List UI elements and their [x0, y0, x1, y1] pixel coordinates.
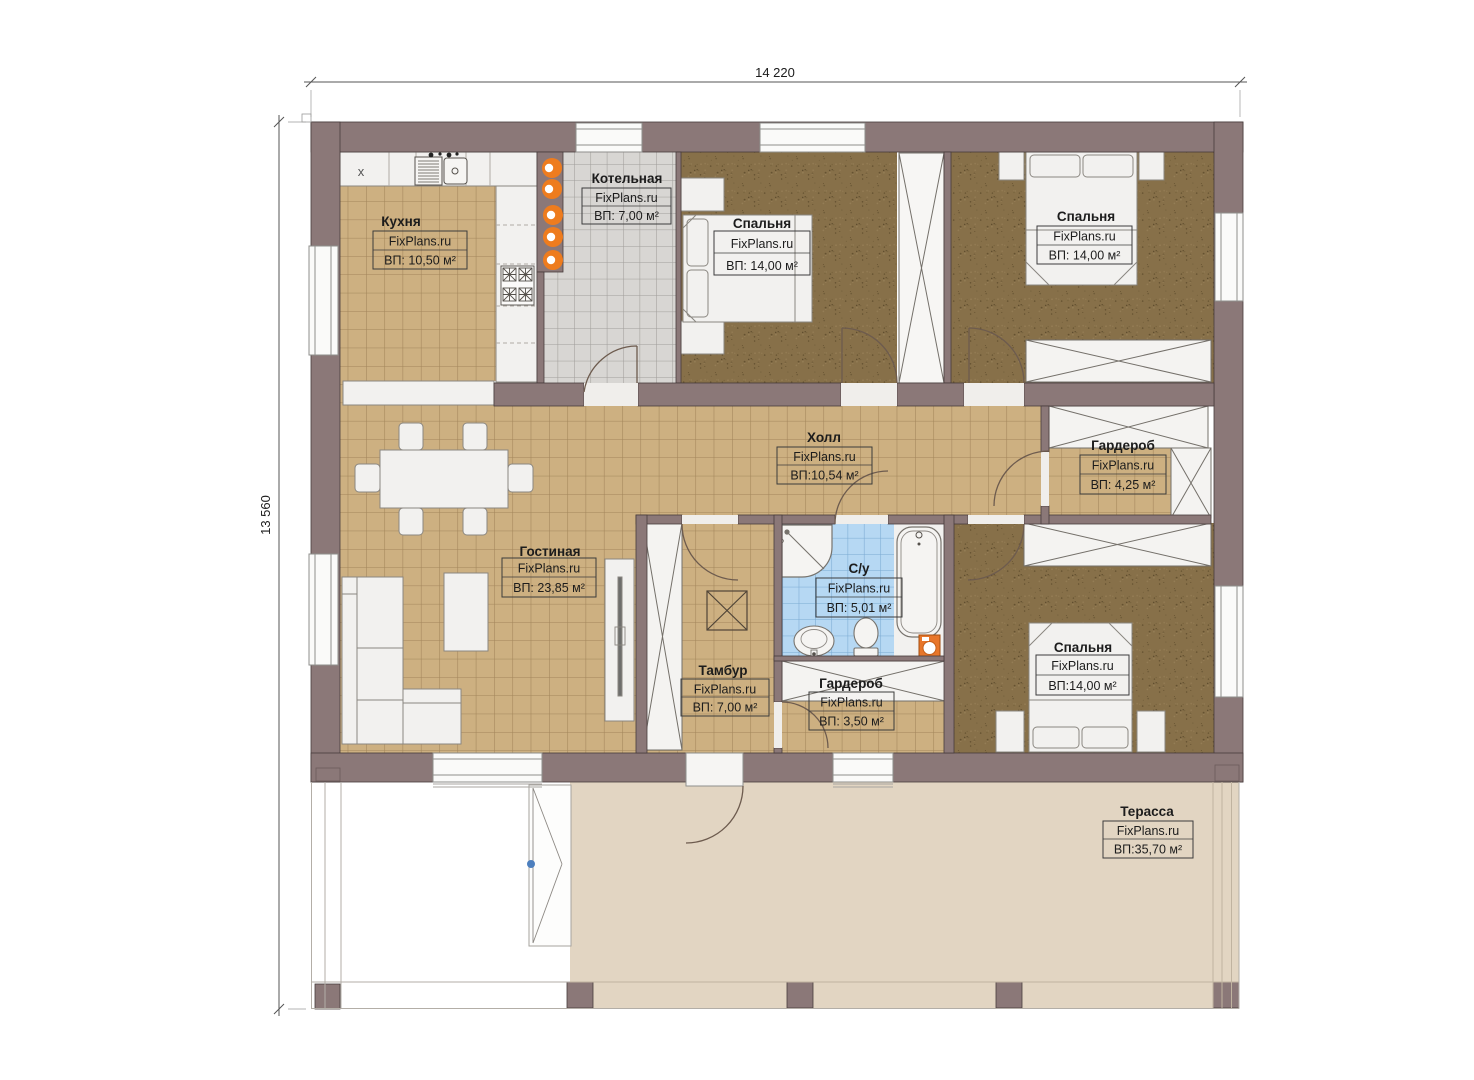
svg-text:Гостиная: Гостиная — [519, 544, 580, 559]
svg-text:Холл: Холл — [807, 430, 841, 445]
svg-text:ВП: 5,01 м²: ВП: 5,01 м² — [827, 601, 892, 615]
svg-text:x: x — [358, 164, 365, 179]
svg-text:ВП: 3,50 м²: ВП: 3,50 м² — [819, 715, 884, 729]
svg-text:FixPlans.ru: FixPlans.ru — [1053, 230, 1116, 244]
svg-text:FixPlans.ru: FixPlans.ru — [793, 450, 856, 464]
svg-text:Спальня: Спальня — [1054, 640, 1112, 655]
svg-text:Терасса: Терасса — [1120, 804, 1174, 819]
svg-text:FixPlans.ru: FixPlans.ru — [1051, 659, 1114, 673]
svg-text:Котельная: Котельная — [592, 171, 663, 186]
svg-text:ВП:10,54 м²: ВП:10,54 м² — [790, 469, 858, 483]
svg-text:FixPlans.ru: FixPlans.ru — [828, 582, 891, 596]
svg-text:ВП: 7,00 м²: ВП: 7,00 м² — [693, 701, 758, 715]
svg-text:ВП: 4,25 м²: ВП: 4,25 м² — [1091, 478, 1156, 492]
svg-text:FixPlans.ru: FixPlans.ru — [595, 191, 658, 205]
svg-text:ВП:14,00 м²: ВП:14,00 м² — [1048, 679, 1116, 693]
svg-text:Гардероб: Гардероб — [819, 676, 883, 691]
svg-text:FixPlans.ru: FixPlans.ru — [694, 683, 757, 697]
svg-text:FixPlans.ru: FixPlans.ru — [820, 696, 883, 710]
svg-text:Спальня: Спальня — [1057, 209, 1115, 224]
svg-text:ВП: 14,00 м²: ВП: 14,00 м² — [1049, 249, 1121, 263]
svg-text:FixPlans.ru: FixPlans.ru — [518, 562, 581, 576]
svg-text:Гардероб: Гардероб — [1091, 438, 1155, 453]
svg-text:ВП: 10,50 м²: ВП: 10,50 м² — [384, 254, 456, 268]
svg-text:Тамбур: Тамбур — [699, 663, 748, 678]
svg-text:ВП: 23,85 м²: ВП: 23,85 м² — [513, 581, 585, 595]
svg-text:FixPlans.ru: FixPlans.ru — [1092, 459, 1155, 473]
svg-text:FixPlans.ru: FixPlans.ru — [389, 235, 452, 249]
svg-text:FixPlans.ru: FixPlans.ru — [1117, 824, 1180, 838]
svg-text:С/у: С/у — [848, 561, 870, 576]
svg-text:13 560: 13 560 — [258, 495, 273, 535]
svg-text:ВП: 7,00 м²: ВП: 7,00 м² — [594, 209, 659, 223]
svg-text:ВП: 14,00 м²: ВП: 14,00 м² — [726, 259, 798, 273]
svg-text:14 220: 14 220 — [755, 65, 795, 80]
svg-text:ВП:35,70 м²: ВП:35,70 м² — [1114, 843, 1182, 857]
svg-text:Спальня: Спальня — [733, 216, 791, 231]
svg-text:FixPlans.ru: FixPlans.ru — [731, 237, 794, 251]
svg-text:Кухня: Кухня — [381, 214, 420, 229]
